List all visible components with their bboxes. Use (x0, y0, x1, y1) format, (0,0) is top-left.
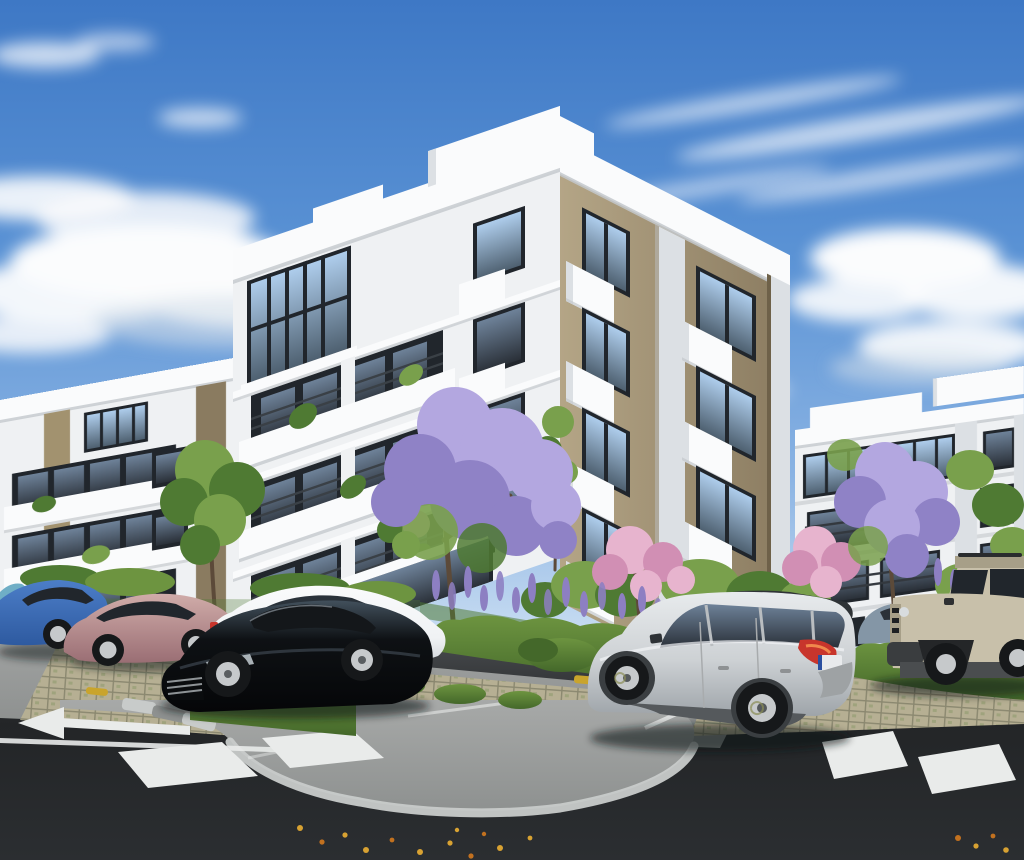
scene-canvas: 3D architectural rendering of a modern r… (0, 0, 1024, 860)
rendered-scene: 3D architectural rendering of a modern r… (0, 0, 1024, 860)
